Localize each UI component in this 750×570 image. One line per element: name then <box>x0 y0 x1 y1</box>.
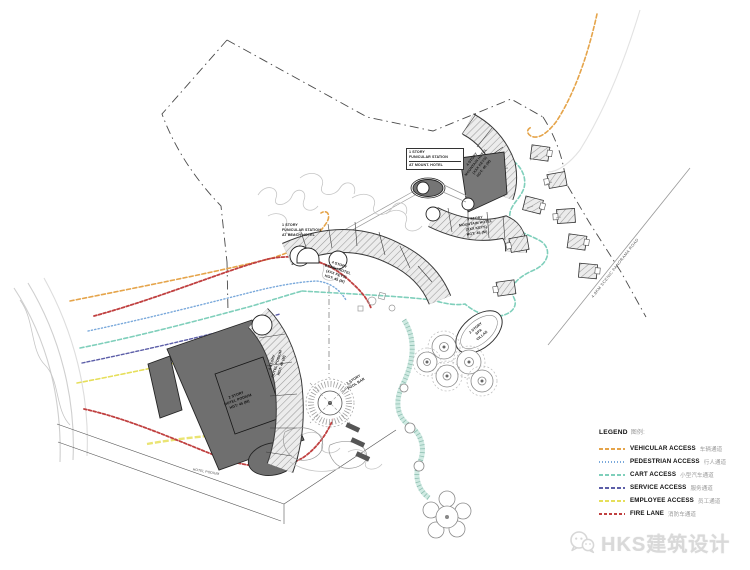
label-funicular-mount-hotel: 1 STORY FUNICULAR STATION AT MOUNT. HOTE… <box>406 148 464 170</box>
site-boundary <box>162 40 646 317</box>
watermark-text: HKS建筑设计 <box>601 528 730 557</box>
spa-cluster <box>413 302 510 396</box>
cart-line-swatch <box>599 474 625 476</box>
legend-item-pedestrian: PEDESTRIAN ACCESS 行人通道 <box>599 455 749 468</box>
legend: LEGEND图例: VEHICULAR ACCESS 车辆通道 PEDESTRI… <box>599 427 749 520</box>
legend-item-employee: EMPLOYEE ACCESS 员工通道 <box>599 494 749 507</box>
legend-item-service: SERVICE ACCESS 服务通道 <box>599 481 749 494</box>
legend-title: LEGEND图例: <box>599 427 749 436</box>
fire-lane-swatch <box>599 513 625 515</box>
watermark-hks: HKS建筑设计 <box>569 528 730 557</box>
pedestrian-line-swatch <box>599 461 625 463</box>
legend-item-fire-lane: FIRE LANE 消防车通道 <box>599 507 749 520</box>
service-line-swatch <box>599 487 625 489</box>
beach-hotel-buildings <box>148 222 440 480</box>
stepped-path <box>398 320 429 498</box>
legend-item-vehicular: VEHICULAR ACCESS 车辆通道 <box>599 442 749 455</box>
employee-line-swatch <box>599 500 625 502</box>
vehicular-line-swatch <box>599 448 625 450</box>
circular-plaza <box>306 286 354 427</box>
flower-pool <box>423 491 471 538</box>
label-funicular-beach-hotel: 1 STORY FUNICULAR STATION AT BEACH HOTEL <box>282 223 321 238</box>
site-plan-page: 1 STORY FUNICULAR STATION AT MOUNT. HOTE… <box>0 0 750 570</box>
wechat-icon <box>569 530 596 556</box>
legend-item-cart: CART ACCESS 小型汽车通道 <box>599 468 749 481</box>
